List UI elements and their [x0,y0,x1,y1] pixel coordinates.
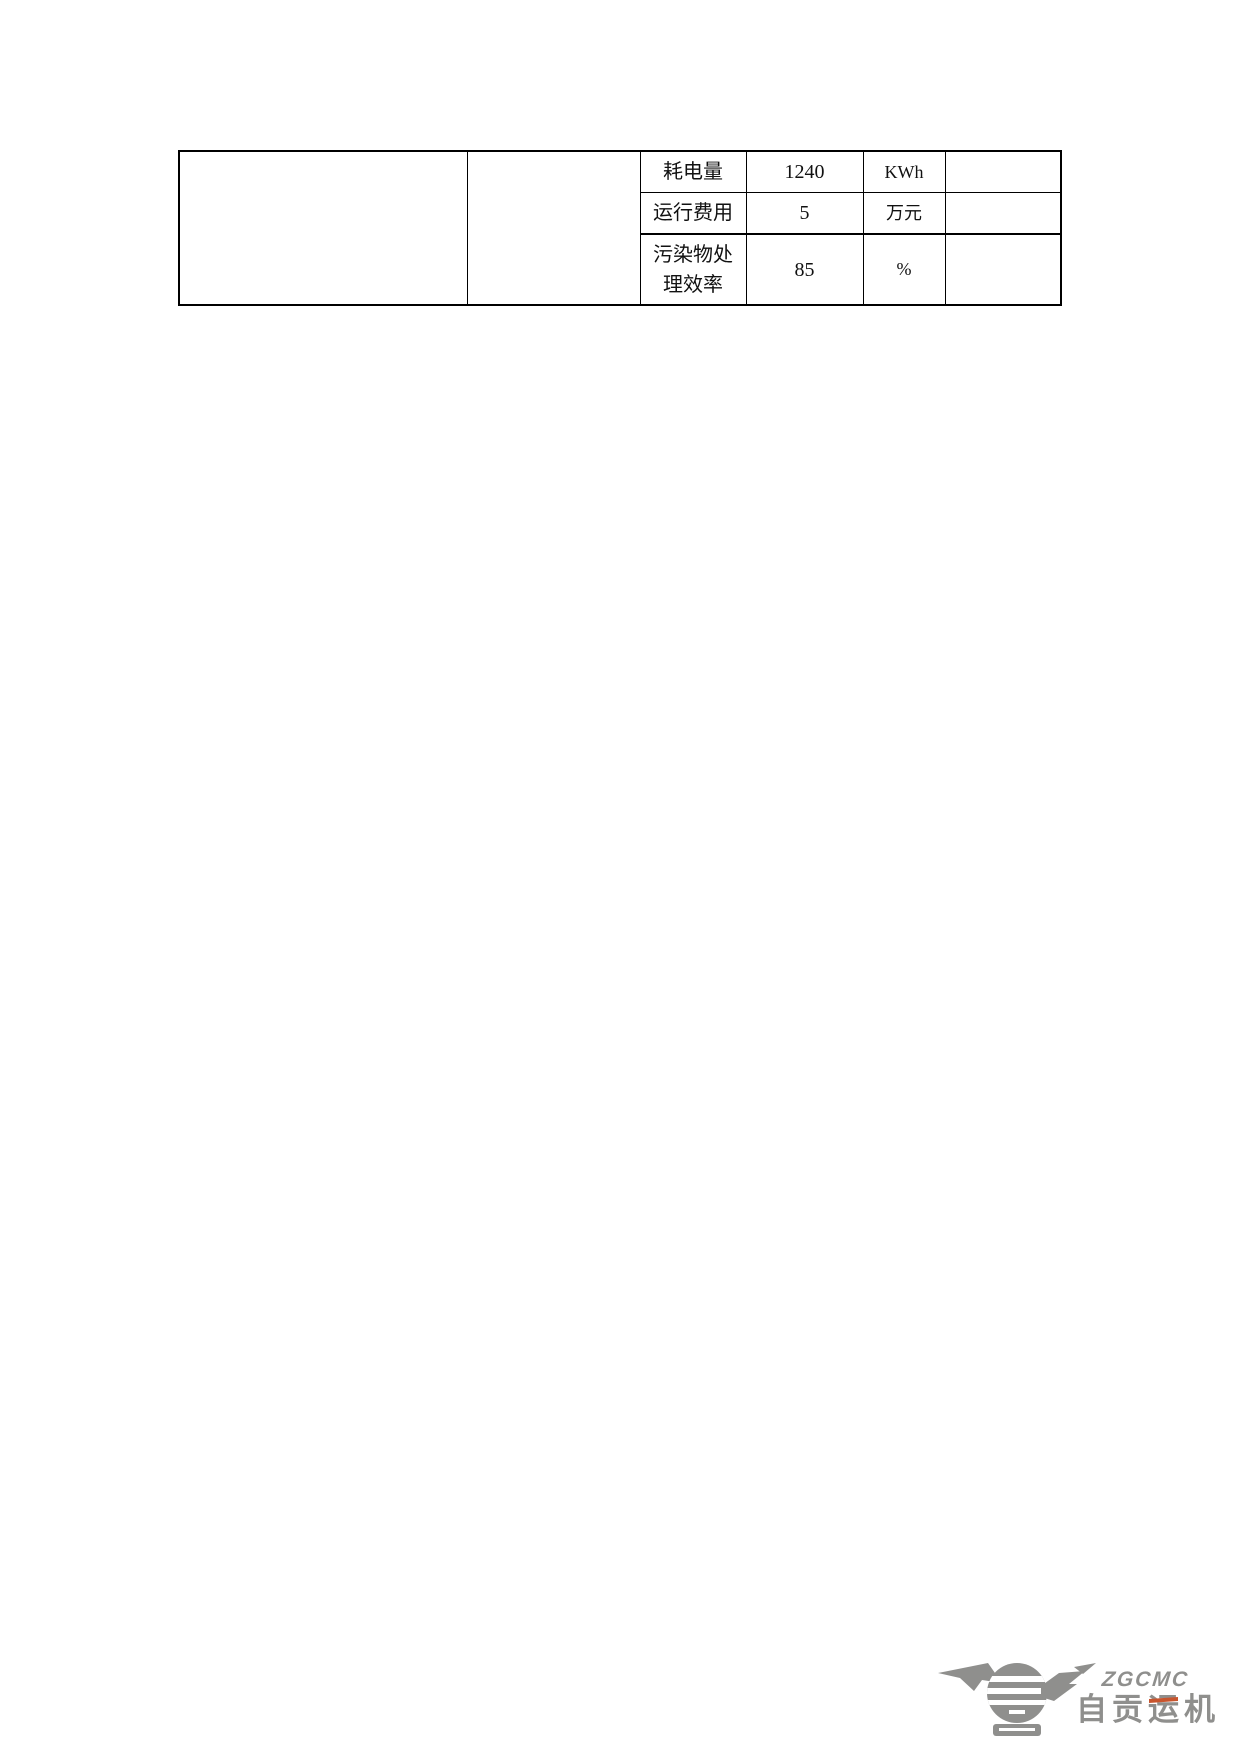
logo-acronym: ZGCMC [1075,1668,1238,1692]
empty-merged-cell-2 [467,151,640,305]
logo-name-prefix: 自贡 [1076,1692,1148,1727]
logo-name-suffix: 机 [1184,1692,1220,1727]
empty-cell-power [945,151,1061,193]
logo-name-yun: 运 [1148,1693,1184,1727]
table-row-power: 耗电量 1240 KWh [179,151,1061,193]
cell-unit-cost: 万元 [863,193,945,235]
cell-unit-efficiency: % [863,234,945,305]
cell-label-power: 耗电量 [640,151,746,193]
cell-unit-power: KWh [863,151,945,193]
document-page: 耗电量 1240 KWh 运行费用 5 万元 污染物处理效率 85 % [0,0,1241,1754]
cell-label-efficiency: 污染物处理效率 [640,234,746,305]
cell-value-efficiency: 85 [746,234,863,305]
cell-value-power: 1240 [746,151,863,193]
logo-chinese-name: 自贡运机 [1076,1693,1236,1727]
empty-cell-efficiency [945,234,1061,305]
pollution-treatment-table: 耗电量 1240 KWh 运行费用 5 万元 污染物处理效率 85 % [178,150,1062,306]
cell-value-cost: 5 [746,193,863,235]
empty-merged-cell-1 [179,151,467,305]
cell-label-cost: 运行费用 [640,193,746,235]
zgcmc-logo: ZGCMC 自贡运机 [936,1658,1236,1748]
empty-cell-cost [945,193,1061,235]
logo-text-block: ZGCMC 自贡运机 [1076,1668,1236,1727]
